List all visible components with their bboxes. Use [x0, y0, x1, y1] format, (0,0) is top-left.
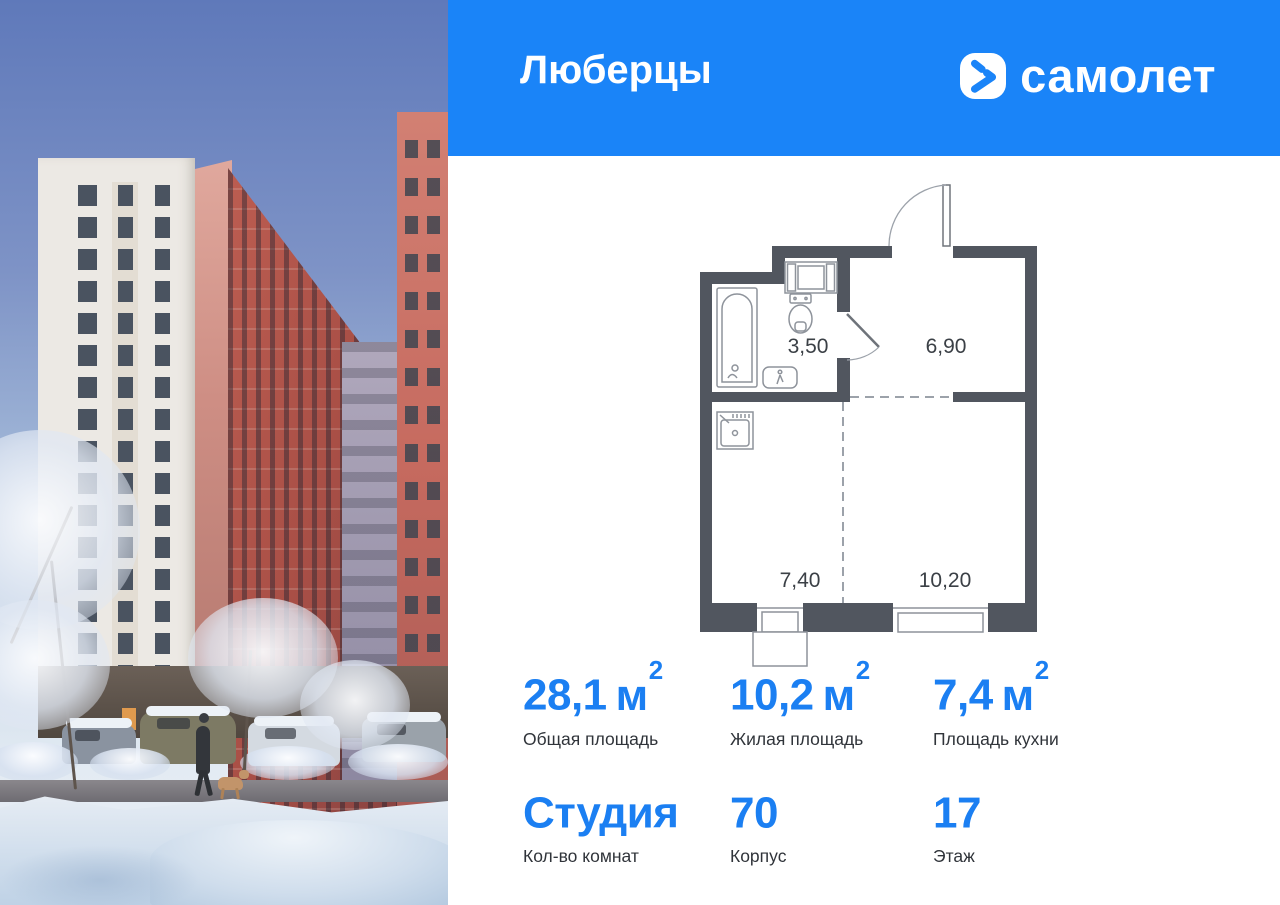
kitchen-area-label: 7,40: [780, 569, 821, 592]
hallway-area-label: 6,90: [926, 335, 967, 358]
stat-label: Кол-во комнат: [523, 846, 730, 867]
stat-label: Корпус: [730, 846, 933, 867]
stat-label: Общая площадь: [523, 729, 730, 750]
snowy-bush: [240, 746, 336, 780]
stat-value: Студия: [523, 790, 730, 836]
stat-value: 70: [730, 790, 933, 836]
stat-value: 7,4м2: [933, 672, 1133, 718]
snow-mound: [150, 820, 448, 905]
window-column: [427, 140, 440, 742]
entry-door: [889, 185, 950, 246]
building-photo: [0, 0, 448, 905]
bathtub-icon: [717, 288, 757, 387]
snowy-bush: [90, 748, 170, 780]
living-room-area-label: 10,20: [919, 569, 972, 592]
stat-living-area: 10,2м2 Жилая площадь: [730, 672, 933, 750]
samolet-logo-icon: [960, 53, 1006, 99]
stat-value: 28,1м2: [523, 672, 730, 718]
toilet-icon: [789, 294, 812, 333]
stat-label: Площадь кухни: [933, 729, 1133, 750]
stat-rooms: Студия Кол-во комнат: [523, 790, 730, 868]
brand-name: самолет: [1020, 52, 1216, 99]
dog-head: [239, 770, 249, 779]
listing-card: Люберцы самолет: [0, 0, 1280, 905]
pedestrian: [196, 726, 210, 774]
window-column: [155, 185, 170, 695]
stat-label: Жилая площадь: [730, 729, 933, 750]
bathroom-door: [847, 314, 879, 360]
brand-logo: самолет: [960, 52, 1216, 99]
stat-label: Этаж: [933, 846, 1133, 867]
kitchen-sink-icon: [717, 412, 753, 449]
pedestrian-head: [199, 713, 209, 723]
kitchen-window: [753, 603, 807, 666]
bathroom-sink-icon: [763, 367, 797, 388]
stat-value: 17: [933, 790, 1133, 836]
window-column: [405, 140, 418, 742]
bathroom-area-label: 3,50: [788, 335, 829, 358]
living-room-window: [893, 603, 988, 632]
stat-kitchen-area: 7,4м2 Площадь кухни: [933, 672, 1133, 750]
apartment-stats: 28,1м2 Общая площадь 10,2м2 Жилая площад…: [523, 672, 1133, 867]
stat-floor: 17 Этаж: [933, 790, 1133, 868]
window-column: [118, 185, 133, 695]
stat-total-area: 28,1м2 Общая площадь: [523, 672, 730, 750]
snowy-tree: [300, 660, 410, 750]
project-title: Люберцы: [520, 50, 712, 90]
stat-value: 10,2м2: [730, 672, 933, 718]
floor-plan: 3,50 6,90 7,40 10,20: [695, 175, 1045, 675]
stat-building: 70 Корпус: [730, 790, 933, 868]
washing-machine-icon: [785, 262, 837, 293]
header: Люберцы самолет: [448, 0, 1280, 156]
